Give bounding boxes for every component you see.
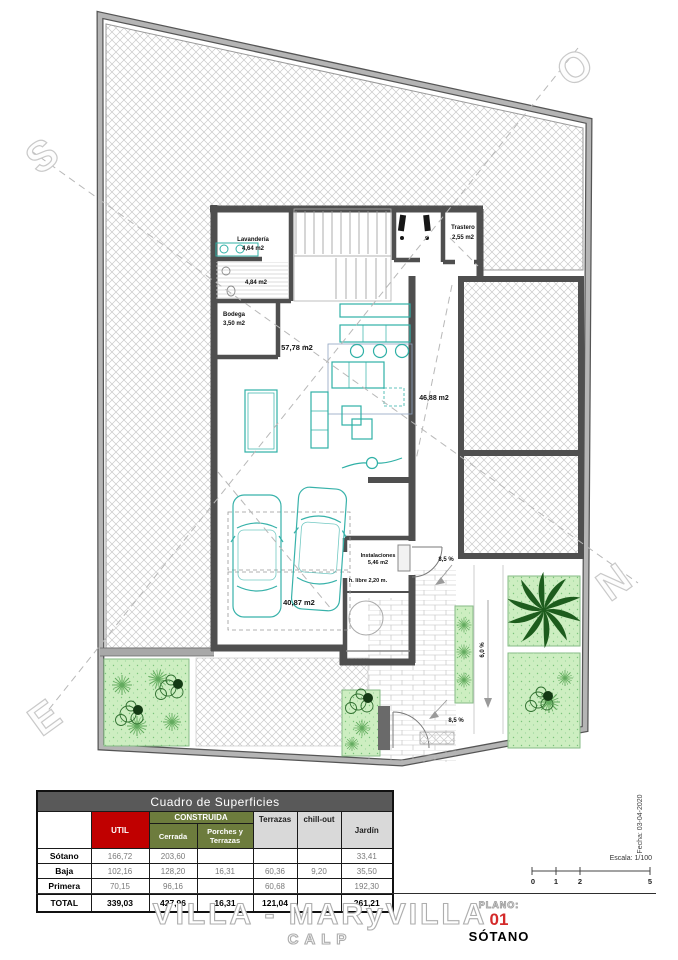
label-slope-bottom: 8,5 % (448, 718, 464, 724)
scale-tick: 0 (531, 877, 535, 886)
date-label: Fecha: 03-04-2020 (637, 784, 649, 864)
table-row: Sótano 166,72 203,60 33,41 (37, 849, 393, 864)
surfaces-table: Cuadro de Superficies UTIL CONSTRUIDA Te… (36, 790, 394, 913)
scale-bar: 0 1 2 5 (530, 864, 656, 886)
row-label: TOTAL (37, 894, 91, 912)
star-plant-icon (457, 673, 472, 688)
label-instalaciones: Instalaciones (361, 553, 396, 559)
cell-chillout (297, 849, 341, 864)
cell-porches (197, 879, 253, 895)
star-plant-icon (557, 670, 573, 686)
label-salon-area: 57,78 m2 (281, 343, 313, 352)
col-header-terrazas: Terrazas (253, 812, 297, 849)
cell-porches (197, 849, 253, 864)
floor-plan-canvas: S O E N Lavandería 4,64 m2 4,84 m2 Bodeg… (0, 0, 678, 790)
label-lavanderia-area: 4,64 m2 (242, 246, 265, 252)
plan-sheet: S O E N Lavandería 4,64 m2 4,84 m2 Bodeg… (0, 0, 678, 960)
cell-porches: 16,31 (197, 864, 253, 879)
table-row: Baja 102,16 128,20 16,31 60,36 9,20 35,5… (37, 864, 393, 879)
label-instalaciones-area: 5,46 m2 (368, 560, 388, 566)
star-plant-icon (457, 618, 472, 633)
compass-east: E (19, 690, 69, 744)
cell-jardin: 192,30 (341, 879, 393, 895)
scale-tick: 1 (554, 877, 558, 886)
cell-terrazas: 60,68 (253, 879, 297, 895)
gate-pier (378, 706, 390, 750)
label-bodega-area: 3,50 m2 (223, 321, 246, 327)
cell-cerrada: 128,20 (149, 864, 197, 879)
right-courtyard (458, 279, 584, 556)
cell-chillout: 9,20 (297, 864, 341, 879)
row-label: Sótano (37, 849, 91, 864)
star-plant-icon (112, 675, 132, 695)
col-header-porches: Porches y Terrazas (197, 824, 253, 849)
scale-label: Escala: 1/100 (530, 855, 652, 862)
compass-west: O (548, 39, 602, 96)
col-header-construida: CONSTRUIDA (149, 812, 253, 824)
garden-plot (104, 659, 189, 746)
scale-tick: 5 (648, 877, 652, 886)
plano-block: PLANO: 01 SÓTANO (447, 901, 551, 944)
cell-cerrada: 203,60 (149, 849, 197, 864)
cell-util: 166,72 (91, 849, 149, 864)
cell-util: 70,15 (91, 879, 149, 895)
cell-terrazas: 60,36 (253, 864, 297, 879)
table-corner-cell (37, 812, 91, 849)
footer-divider (36, 893, 656, 894)
col-header-util: UTIL (91, 812, 149, 849)
compass-south: S (17, 128, 67, 182)
garden-plot (342, 690, 380, 756)
table-row: Primera 70,15 96,16 60,68 192,30 (37, 879, 393, 895)
col-header-jardin: Jardín (341, 812, 393, 849)
label-lavanderia: Lavandería (237, 237, 269, 243)
label-patio-area: 46,88 m2 (419, 395, 449, 402)
star-plant-icon (127, 716, 147, 736)
retaining-wall (100, 648, 214, 656)
label-trastero: Trastero (451, 225, 475, 231)
star-plant-icon (457, 645, 472, 660)
label-trastero-area: 2,55 m2 (452, 235, 475, 241)
cell-jardin: 33,41 (341, 849, 393, 864)
cell-jardin: 35,50 (341, 864, 393, 879)
label-garaje-area: 40,87 m2 (283, 598, 315, 607)
table-title: Cuadro de Superficies (37, 791, 393, 812)
label-slope-top: 8,5 % (438, 557, 454, 563)
cell-chillout (297, 879, 341, 895)
equipment (398, 545, 410, 571)
col-header-cerrada: Cerrada (149, 824, 197, 849)
cell-util: 102,16 (91, 864, 149, 879)
drain-grate (420, 732, 454, 744)
cell-terrazas (253, 849, 297, 864)
label-bodega: Bodega (223, 312, 246, 318)
col-header-chillout: chill-out (297, 812, 341, 849)
label-slope-ramp: 6,0 % (480, 642, 486, 658)
cell-cerrada: 96,16 (149, 879, 197, 895)
label-bath-area: 4,84 m2 (245, 280, 268, 286)
scale-tick: 2 (578, 877, 582, 886)
surfaces-table-wrap: Cuadro de Superficies UTIL CONSTRUIDA Te… (36, 790, 394, 913)
row-label: Primera (37, 879, 91, 895)
plano-number: 01 (447, 911, 551, 930)
compass-north: N (588, 554, 640, 610)
plano-name: SÓTANO (447, 930, 551, 944)
label-altura-libre: h. libre 2,20 m. (349, 578, 388, 584)
row-label: Baja (37, 864, 91, 879)
